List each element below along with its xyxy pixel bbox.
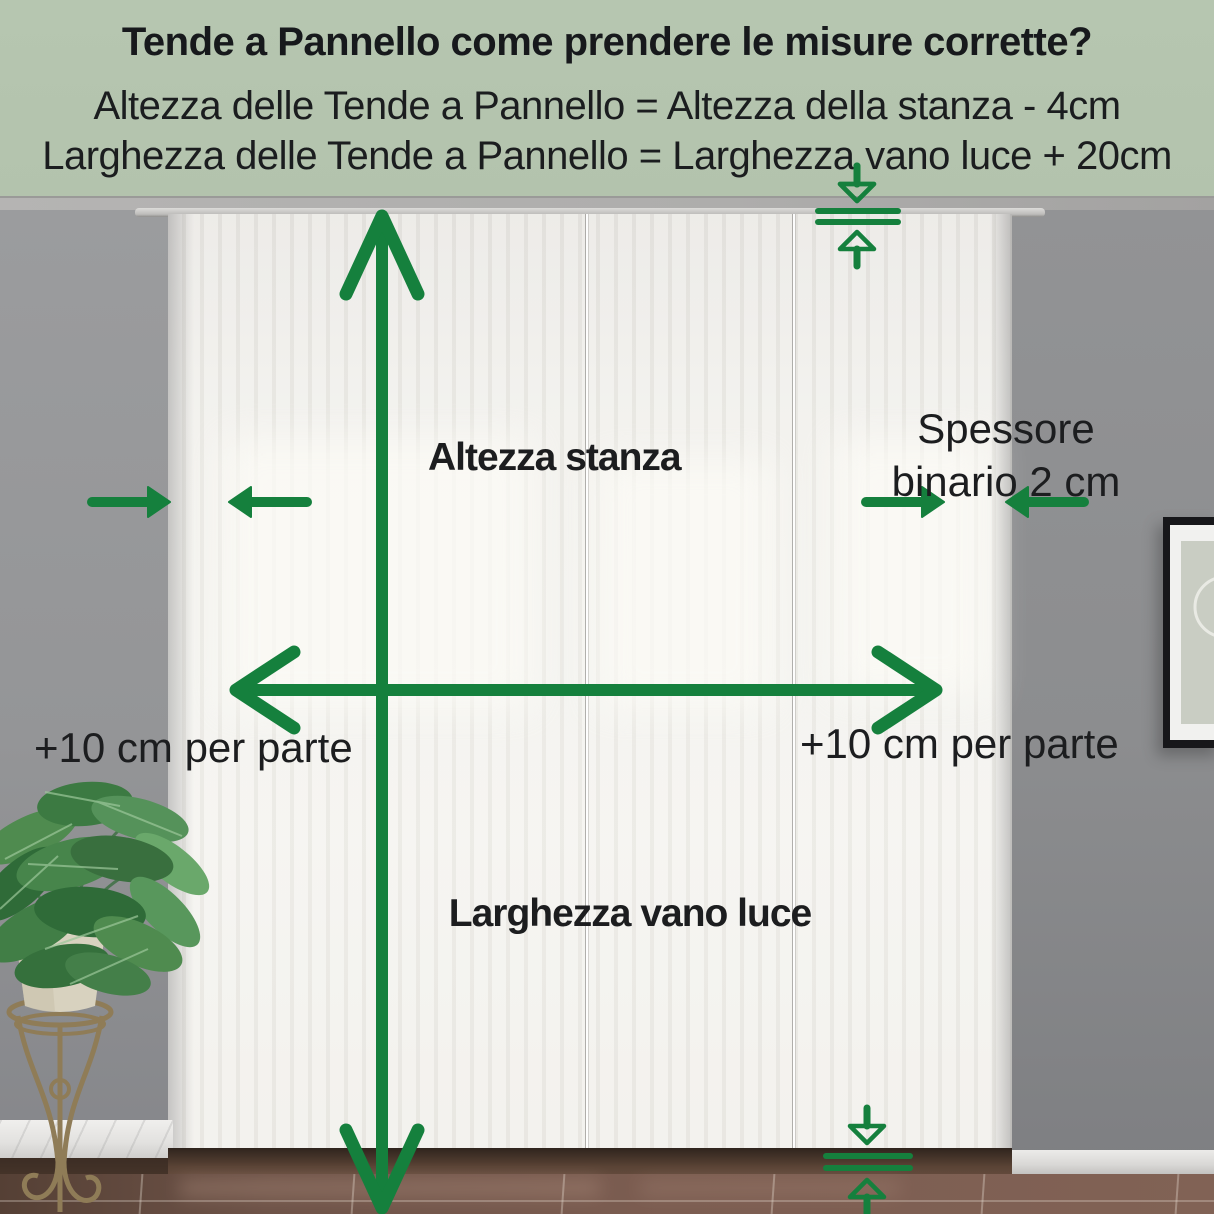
side-allowance-right-label: +10 cm per parte	[800, 720, 1119, 768]
rail-thickness-label-line2: binario 2 cm	[876, 455, 1136, 508]
rail-thickness-label-line1: Spessore	[876, 402, 1136, 455]
page-title: Tende a Pannello come prendere le misure…	[0, 20, 1214, 65]
rail-thickness-label: Spessore binario 2 cm	[876, 402, 1136, 508]
width-formula-text: Larghezza delle Tende a Pannello = Largh…	[0, 134, 1214, 179]
panel-seam	[378, 214, 382, 1214]
panel-seam	[792, 214, 796, 1214]
header-banner: Tende a Pannello come prendere le misure…	[0, 0, 1214, 198]
marble-baseboard-right	[1012, 1150, 1214, 1174]
artwork-circle-motif	[1181, 541, 1214, 724]
room-height-label: Altezza stanza	[428, 436, 681, 481]
infographic-canvas: Altezza stanza Larghezza vano luce Spess…	[0, 0, 1214, 1214]
curtain-right-shadow	[990, 214, 1012, 1214]
potted-plant	[0, 744, 210, 1214]
tile-grout-line	[981, 1174, 986, 1214]
tile-grout-line	[1175, 1174, 1180, 1214]
side-allowance-left-label: +10 cm per parte	[34, 724, 353, 772]
height-formula-text: Altezza delle Tende a Pannello = Altezza…	[0, 84, 1214, 129]
curtain-fabric-texture	[168, 214, 1012, 1214]
plant-stand	[9, 999, 111, 1212]
panel-curtain	[168, 214, 1012, 1214]
plant-leaves	[0, 778, 210, 1004]
floor-reflection	[180, 1180, 600, 1196]
picture-frame	[1163, 517, 1214, 748]
floor-reflection	[640, 1182, 900, 1194]
panel-seam	[585, 214, 589, 1214]
opening-width-label: Larghezza vano luce	[418, 892, 842, 937]
frame-artwork	[1181, 541, 1214, 724]
window-light-patch	[598, 459, 773, 709]
room-photo	[0, 196, 1214, 1214]
